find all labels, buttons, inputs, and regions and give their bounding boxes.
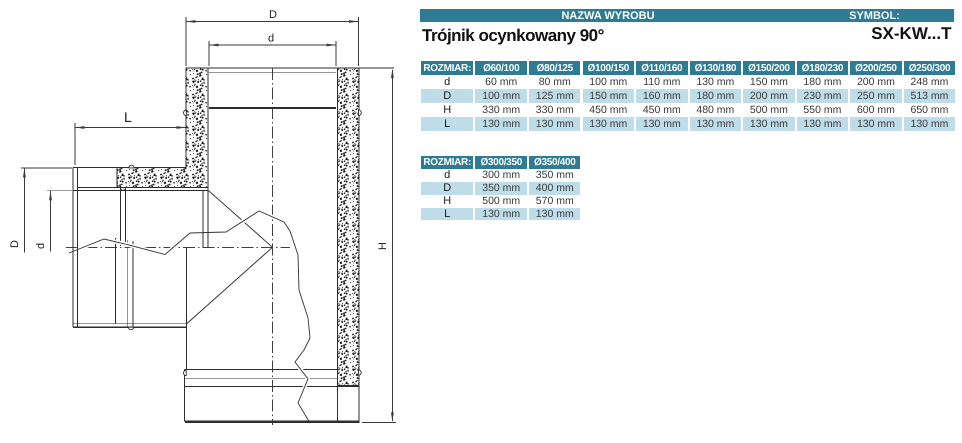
svg-text:D: D [269, 9, 277, 21]
svg-text:H: H [377, 242, 389, 250]
svg-text:d: d [268, 33, 274, 45]
svg-text:L: L [124, 109, 132, 125]
svg-text:d: d [35, 243, 47, 249]
svg-text:D: D [9, 240, 21, 248]
